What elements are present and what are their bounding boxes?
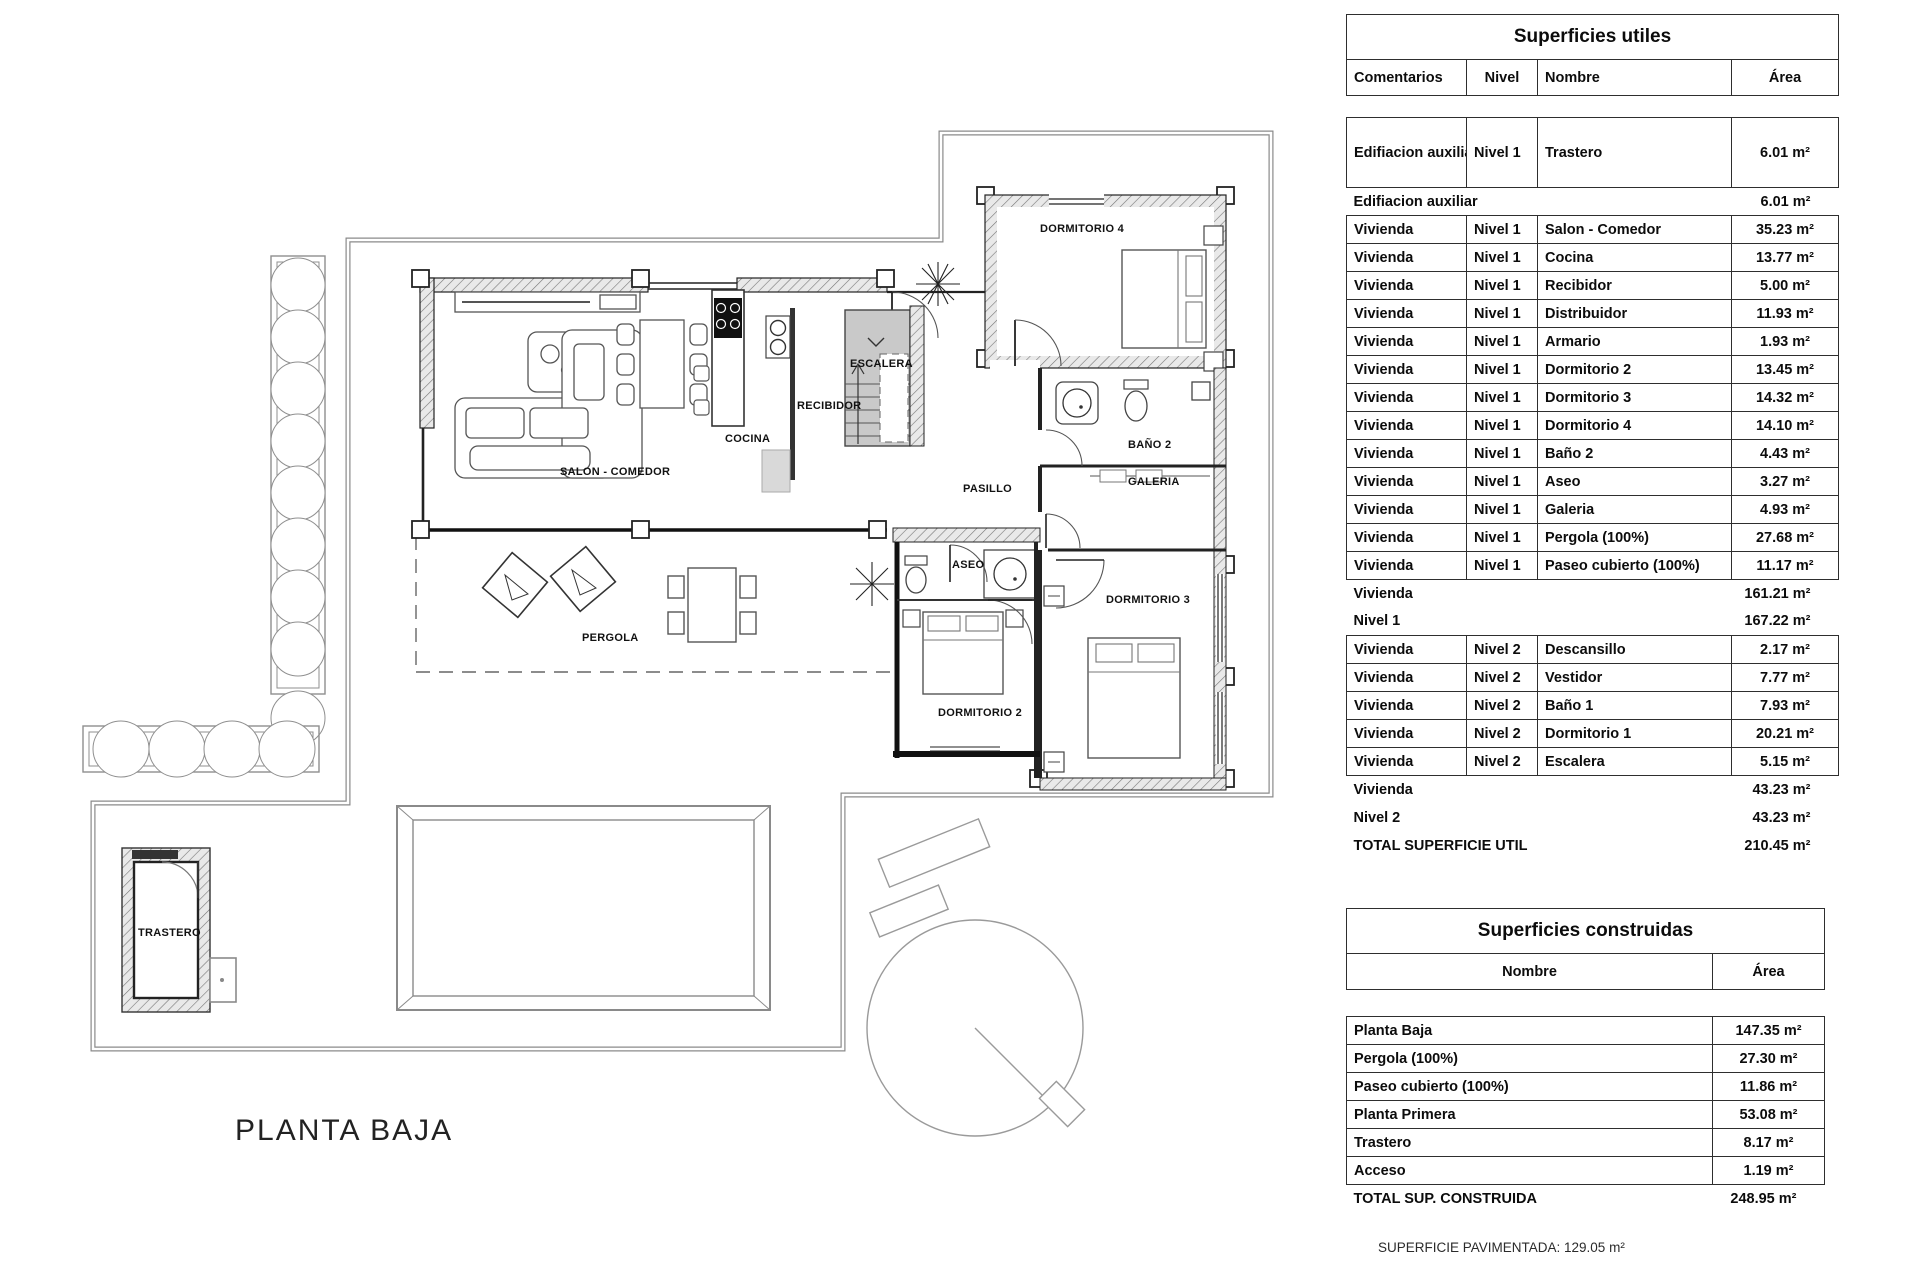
- pavimentada-note: SUPERFICIE PAVIMENTADA: 129.05 m²: [1378, 1240, 1625, 1255]
- cell-comentarios: Vivienda: [1347, 356, 1467, 384]
- lounge-chair: [483, 547, 616, 618]
- cell-nombre: Salon - Comedor: [1538, 216, 1732, 244]
- cell-comentarios: Vivienda: [1347, 748, 1467, 776]
- table-row: Edifiacion auxiliar6.01 m²: [1347, 188, 1839, 216]
- table-row: Pergola (100%)27.30 m²: [1347, 1045, 1825, 1073]
- cell-nombre: Paseo cubierto (100%): [1538, 552, 1732, 580]
- cell-nombre: Pergola (100%): [1347, 1045, 1713, 1073]
- tree-row-horizontal: [83, 721, 319, 777]
- total-label: TOTAL SUPERFICIE UTIL: [1347, 832, 1732, 860]
- subtotal-area: 161.21 m²: [1732, 580, 1839, 608]
- table-row: ViviendaNivel 2Escalera5.15 m²: [1347, 748, 1839, 776]
- table-row: ViviendaNivel 1Paseo cubierto (100%)11.1…: [1347, 552, 1839, 580]
- cell-comentarios: Vivienda: [1347, 468, 1467, 496]
- table-row: Planta Primera53.08 m²: [1347, 1101, 1825, 1129]
- cell-nombre: Dormitorio 3: [1538, 384, 1732, 412]
- floor-plan: SALON - COMEDOR COCINA RECIBIDOR ESCALER…: [0, 0, 1340, 1280]
- cell-nivel: Nivel 1: [1467, 524, 1538, 552]
- dormitorio3-room: [1040, 550, 1180, 778]
- stairs: [845, 310, 910, 446]
- outdoor-table: [668, 568, 756, 642]
- label-dormitorio3: DORMITORIO 3: [1106, 594, 1190, 606]
- cell-area: 27.30 m²: [1713, 1045, 1825, 1073]
- cell-comentarios: Vivienda: [1347, 552, 1467, 580]
- cell-nombre: Planta Baja: [1347, 1017, 1713, 1045]
- cell-nivel: Nivel 1: [1467, 356, 1538, 384]
- table-row: ViviendaNivel 1Recibidor5.00 m²: [1347, 272, 1839, 300]
- table-row: ViviendaNivel 1Cocina13.77 m²: [1347, 244, 1839, 272]
- subtotal-label: Nivel 1: [1347, 608, 1732, 636]
- table-row: Nivel 243.23 m²: [1347, 804, 1839, 832]
- cell-area: 5.15 m²: [1732, 748, 1839, 776]
- cell-nivel: Nivel 2: [1467, 692, 1538, 720]
- construidas-header-row: Nombre Área: [1347, 954, 1825, 990]
- table-row: Vivienda161.21 m²: [1347, 580, 1839, 608]
- cell-comentarios: Vivienda: [1347, 664, 1467, 692]
- table-row: Vivienda43.23 m²: [1347, 776, 1839, 804]
- table-row: Planta Baja147.35 m²: [1347, 1017, 1825, 1045]
- cell-area: 6.01 m²: [1732, 118, 1839, 188]
- page: SALON - COMEDOR COCINA RECIBIDOR ESCALER…: [0, 0, 1920, 1280]
- cell-nivel: Nivel 1: [1467, 468, 1538, 496]
- floor-title: PLANTA BAJA: [235, 1114, 453, 1147]
- table-row: ViviendaNivel 1Dormitorio 213.45 m²: [1347, 356, 1839, 384]
- cell-nivel: Nivel 2: [1467, 664, 1538, 692]
- subtotal-area: 167.22 m²: [1732, 608, 1839, 636]
- subtotal-area: 6.01 m²: [1732, 188, 1839, 216]
- utiles-header-row: Comentarios Nivel Nombre Área: [1347, 60, 1839, 96]
- cell-comentarios: Vivienda: [1347, 496, 1467, 524]
- plant-icon: [850, 562, 894, 606]
- cell-area: 7.93 m²: [1732, 692, 1839, 720]
- cell-comentarios: Edifiacion auxiliar: [1347, 118, 1467, 188]
- cell-nombre: Vestidor: [1538, 664, 1732, 692]
- subtotal-label: Vivienda: [1347, 776, 1732, 804]
- cell-comentarios: Vivienda: [1347, 244, 1467, 272]
- cell-area: 8.17 m²: [1713, 1129, 1825, 1157]
- cell-nombre: Escalera: [1538, 748, 1732, 776]
- cell-comentarios: Vivienda: [1347, 216, 1467, 244]
- cell-nivel: Nivel 2: [1467, 636, 1538, 664]
- cell-area: 5.00 m²: [1732, 272, 1839, 300]
- cell-nombre: Recibidor: [1538, 272, 1732, 300]
- construidas-header-nombre: Nombre: [1347, 954, 1713, 990]
- cell-comentarios: Vivienda: [1347, 384, 1467, 412]
- cell-area: 7.77 m²: [1732, 664, 1839, 692]
- total-label: TOTAL SUP. CONSTRUIDA: [1347, 1185, 1713, 1213]
- cell-nivel: Nivel 1: [1467, 328, 1538, 356]
- cell-nombre: Trastero: [1347, 1129, 1713, 1157]
- cell-nombre: Baño 1: [1538, 692, 1732, 720]
- table-row: ViviendaNivel 2Descansillo2.17 m²: [1347, 636, 1839, 664]
- total-area: 248.95 m²: [1713, 1185, 1825, 1213]
- label-trastero: TRASTERO: [138, 927, 201, 939]
- cell-area: 13.45 m²: [1732, 356, 1839, 384]
- cell-area: 13.77 m²: [1732, 244, 1839, 272]
- cell-nombre: Pergola (100%): [1538, 524, 1732, 552]
- dining-table: [617, 320, 707, 408]
- cell-area: 11.93 m²: [1732, 300, 1839, 328]
- cell-nombre: Armario: [1538, 328, 1732, 356]
- cell-comentarios: Vivienda: [1347, 412, 1467, 440]
- utiles-title: Superficies utiles: [1347, 15, 1839, 60]
- subtotal-area: 43.23 m²: [1732, 776, 1839, 804]
- cell-area: 147.35 m²: [1713, 1017, 1825, 1045]
- round-terrace: [867, 819, 1085, 1136]
- label-pasillo: PASILLO: [963, 483, 1012, 495]
- construidas-title: Superficies construidas: [1347, 909, 1825, 954]
- pergola-zone: [416, 536, 890, 672]
- cell-nombre: Acceso: [1347, 1157, 1713, 1185]
- table-row: ViviendaNivel 2Baño 17.93 m²: [1347, 692, 1839, 720]
- table-row: ViviendaNivel 2Dormitorio 120.21 m²: [1347, 720, 1839, 748]
- label-escalera: ESCALERA: [850, 358, 913, 370]
- cell-comentarios: Vivienda: [1347, 636, 1467, 664]
- label-recibidor: RECIBIDOR: [797, 400, 861, 412]
- cell-nivel: Nivel 1: [1467, 118, 1538, 188]
- cell-nivel: Nivel 1: [1467, 244, 1538, 272]
- cell-nivel: Nivel 2: [1467, 748, 1538, 776]
- pool: [397, 806, 770, 1010]
- cell-comentarios: Vivienda: [1347, 692, 1467, 720]
- subtotal-label: Edifiacion auxiliar: [1347, 188, 1732, 216]
- cell-area: 4.93 m²: [1732, 496, 1839, 524]
- cell-area: 1.93 m²: [1732, 328, 1839, 356]
- plant-icon: [916, 262, 960, 306]
- utiles-header-nombre: Nombre: [1538, 60, 1732, 96]
- label-galeria: GALERIA: [1128, 476, 1180, 488]
- bano2-room: [1040, 368, 1226, 466]
- table-row: Acceso1.19 m²: [1347, 1157, 1825, 1185]
- cell-area: 3.27 m²: [1732, 468, 1839, 496]
- cell-nivel: Nivel 1: [1467, 272, 1538, 300]
- label-aseo: ASEO: [952, 559, 985, 571]
- table-row: ViviendaNivel 1Distribuidor11.93 m²: [1347, 300, 1839, 328]
- cell-nombre: Distribuidor: [1538, 300, 1732, 328]
- cell-nombre: Dormitorio 4: [1538, 412, 1732, 440]
- subtotal-area: 43.23 m²: [1732, 804, 1839, 832]
- label-cocina: COCINA: [725, 433, 770, 445]
- dormitorio4-room: [985, 193, 1226, 374]
- table-row: ViviendaNivel 1Salon - Comedor35.23 m²: [1347, 216, 1839, 244]
- table-row: ViviendaNivel 1Galeria4.93 m²: [1347, 496, 1839, 524]
- cell-nombre: Descansillo: [1538, 636, 1732, 664]
- table-row: ViviendaNivel 1Pergola (100%)27.68 m²: [1347, 524, 1839, 552]
- cell-area: 14.10 m²: [1732, 412, 1839, 440]
- cell-area: 53.08 m²: [1713, 1101, 1825, 1129]
- cell-comentarios: Vivienda: [1347, 720, 1467, 748]
- cell-area: 14.32 m²: [1732, 384, 1839, 412]
- cell-nombre: Trastero: [1538, 118, 1732, 188]
- cell-nombre: Dormitorio 1: [1538, 720, 1732, 748]
- cell-area: 1.19 m²: [1713, 1157, 1825, 1185]
- cell-nombre: Baño 2: [1538, 440, 1732, 468]
- cell-nivel: Nivel 1: [1467, 496, 1538, 524]
- table-row: ViviendaNivel 1Dormitorio 314.32 m²: [1347, 384, 1839, 412]
- cell-nombre: Planta Primera: [1347, 1101, 1713, 1129]
- superficies-utiles-table: Superficies utiles Comentarios Nivel Nom…: [1346, 14, 1839, 860]
- table-row: ViviendaNivel 1Baño 24.43 m²: [1347, 440, 1839, 468]
- cell-nivel: Nivel 2: [1467, 720, 1538, 748]
- label-bano2: BAÑO 2: [1128, 438, 1171, 451]
- table-row: ViviendaNivel 1Dormitorio 414.10 m²: [1347, 412, 1839, 440]
- table-row: Paseo cubierto (100%)11.86 m²: [1347, 1073, 1825, 1101]
- cell-area: 11.17 m²: [1732, 552, 1839, 580]
- cell-comentarios: Vivienda: [1347, 440, 1467, 468]
- label-dormitorio2: DORMITORIO 2: [938, 707, 1022, 719]
- utiles-header-comentarios: Comentarios: [1347, 60, 1467, 96]
- cell-nivel: Nivel 1: [1467, 216, 1538, 244]
- utiles-header-area: Área: [1732, 60, 1839, 96]
- table-row: Nivel 1167.22 m²: [1347, 608, 1839, 636]
- cell-area: 27.68 m²: [1732, 524, 1839, 552]
- cell-nombre: Aseo: [1538, 468, 1732, 496]
- utiles-header-nivel: Nivel: [1467, 60, 1538, 96]
- table-row: ViviendaNivel 1Armario1.93 m²: [1347, 328, 1839, 356]
- cell-area: 20.21 m²: [1732, 720, 1839, 748]
- cell-comentarios: Vivienda: [1347, 524, 1467, 552]
- cell-area: 4.43 m²: [1732, 440, 1839, 468]
- label-salon: SALON - COMEDOR: [560, 466, 670, 478]
- living-furniture: [455, 292, 642, 478]
- table-row: Trastero8.17 m²: [1347, 1129, 1825, 1157]
- table-row: ViviendaNivel 1Aseo3.27 m²: [1347, 468, 1839, 496]
- label-dormitorio4: DORMITORIO 4: [1040, 223, 1125, 235]
- cell-area: 2.17 m²: [1732, 636, 1839, 664]
- table-row: Edifiacion auxiliarNivel 1Trastero6.01 m…: [1347, 118, 1839, 188]
- cell-nivel: Nivel 1: [1467, 384, 1538, 412]
- cell-nivel: Nivel 1: [1467, 300, 1538, 328]
- cell-nivel: Nivel 1: [1467, 552, 1538, 580]
- table-row: TOTAL SUPERFICIE UTIL210.45 m²: [1347, 832, 1839, 860]
- cell-comentarios: Vivienda: [1347, 328, 1467, 356]
- subtotal-label: Nivel 2: [1347, 804, 1732, 832]
- cell-nombre: Paseo cubierto (100%): [1347, 1073, 1713, 1101]
- subtotal-label: Vivienda: [1347, 580, 1732, 608]
- cell-nombre: Dormitorio 2: [1538, 356, 1732, 384]
- cell-area: 11.86 m²: [1713, 1073, 1825, 1101]
- cell-area: 35.23 m²: [1732, 216, 1839, 244]
- construidas-header-area: Área: [1713, 954, 1825, 990]
- superficies-construidas-table: Superficies construidas Nombre Área Plan…: [1346, 908, 1825, 1213]
- cell-comentarios: Vivienda: [1347, 272, 1467, 300]
- cell-comentarios: Vivienda: [1347, 300, 1467, 328]
- cell-nombre: Cocina: [1538, 244, 1732, 272]
- table-row: TOTAL SUP. CONSTRUIDA248.95 m²: [1347, 1185, 1825, 1213]
- total-area: 210.45 m²: [1732, 832, 1839, 860]
- cell-nivel: Nivel 1: [1467, 412, 1538, 440]
- tree-row-vertical: [271, 256, 325, 745]
- cell-nivel: Nivel 1: [1467, 440, 1538, 468]
- label-pergola: PERGOLA: [582, 632, 639, 644]
- cell-nombre: Galeria: [1538, 496, 1732, 524]
- table-row: ViviendaNivel 2Vestidor7.77 m²: [1347, 664, 1839, 692]
